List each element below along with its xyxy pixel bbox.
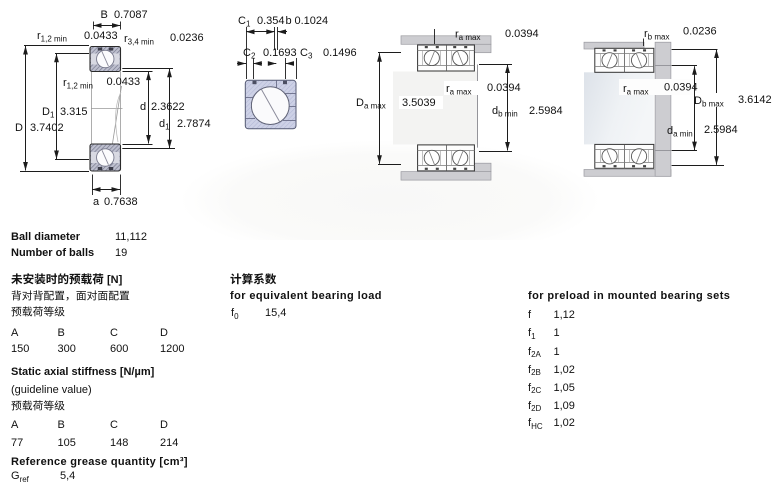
svg-text:0.0433: 0.0433	[84, 30, 118, 42]
svg-text:2.5984: 2.5984	[704, 124, 738, 136]
svg-text:ra max: ra max	[455, 29, 480, 43]
svg-text:2.5984: 2.5984	[529, 105, 563, 117]
svg-text:B 0.7087: B 0.7087	[101, 9, 148, 21]
svg-text:0.0394: 0.0394	[505, 28, 539, 40]
svg-text:r3,4 min: r3,4 min	[124, 33, 154, 47]
svg-text:0.1496: 0.1496	[323, 47, 357, 59]
svg-text:0.0236: 0.0236	[683, 26, 717, 38]
svg-text:d1: d1	[159, 118, 170, 132]
svg-text:3.7402: 3.7402	[30, 122, 64, 134]
svg-text:da min: da min	[667, 125, 693, 139]
svg-text:C1: C1	[238, 15, 251, 29]
svg-text:C2: C2	[243, 47, 256, 61]
svg-text:2.3622: 2.3622	[151, 101, 185, 113]
svg-text:3.5039: 3.5039	[402, 97, 436, 109]
svg-text:b: b	[286, 15, 292, 27]
svg-text:0.0236: 0.0236	[170, 32, 204, 44]
svg-text:rb max: rb max	[644, 28, 669, 42]
svg-text:D1: D1	[42, 106, 55, 120]
svg-text:D: D	[15, 122, 23, 134]
svg-text:0.1024: 0.1024	[295, 15, 329, 27]
svg-text:2.7874: 2.7874	[177, 118, 211, 130]
svg-text:0.0394: 0.0394	[487, 82, 521, 94]
svg-text:a: a	[93, 196, 100, 208]
svg-text:3.315: 3.315	[60, 106, 88, 118]
svg-text:0.354: 0.354	[257, 15, 285, 27]
svg-text:r1,2 min: r1,2 min	[37, 30, 67, 44]
svg-text:Da max: Da max	[356, 97, 386, 111]
svg-text:3.6142: 3.6142	[738, 94, 772, 106]
svg-text:r1,2 min: r1,2 min	[63, 77, 93, 91]
svg-text:db min: db min	[492, 105, 518, 119]
svg-text:0.1693: 0.1693	[263, 47, 297, 59]
svg-text:C3: C3	[300, 47, 313, 61]
svg-text:d: d	[140, 101, 146, 113]
svg-text:0.0433: 0.0433	[107, 76, 141, 88]
svg-text:0.0394: 0.0394	[664, 82, 698, 94]
svg-text:0.7638: 0.7638	[104, 196, 138, 208]
